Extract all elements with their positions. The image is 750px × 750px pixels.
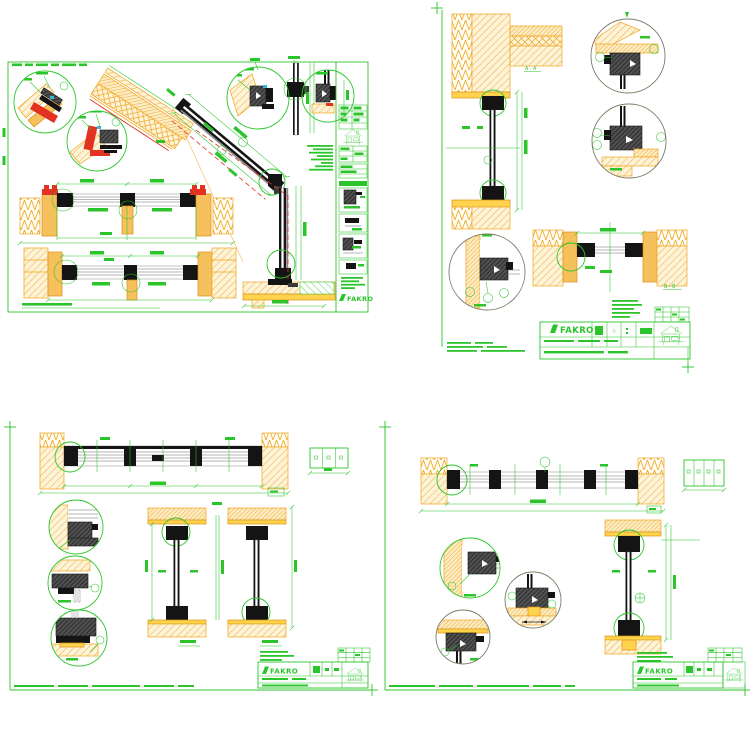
sheet2-title-block: FAKRO <box>540 300 694 373</box>
sheet-bottom-left-three-pane-window: FAKRO <box>4 421 378 696</box>
sheet4-window-elevation <box>682 460 726 492</box>
sheet1-table-2 <box>339 146 367 162</box>
sheet2-fakro-wordmark: FAKRO <box>560 326 594 336</box>
drawing-canvas: FAKRO A - A <box>0 0 750 750</box>
sheet3-plan-section <box>38 433 290 496</box>
sheet3-window-elevation <box>308 448 350 475</box>
fakro-parallelogram-icon <box>637 667 644 675</box>
sheet1-detail-circle-1 <box>14 71 76 133</box>
sheet4-detail-circle-1 <box>440 538 510 598</box>
sheet4-plan-section <box>419 457 665 513</box>
sheet2-vertical-window-section <box>446 90 528 229</box>
sheet2-title-row2-text <box>544 340 618 342</box>
sheet2-title-row3-text <box>544 351 628 353</box>
sheet4-fakro-logo: FAKRO <box>637 667 673 676</box>
sheet1-detail-circle-2 <box>67 110 127 171</box>
sheet3-detail-circle-2 <box>48 556 102 610</box>
sheet2-corner-mark <box>431 2 443 14</box>
sheet3-title-block: FAKRO <box>258 648 370 688</box>
sheet4-scale-cell-icon <box>686 666 693 673</box>
sheet1-fakro-wordmark: FAKRO <box>347 295 373 303</box>
cad-drawing-set: FAKRO A - A <box>0 0 750 750</box>
sheet1-fakro-logo: FAKRO <box>339 294 373 303</box>
sheet4-corner-mark-right <box>739 684 750 696</box>
sheet3-detail-circle-1 <box>46 500 103 554</box>
sheet1-thumbnail-3 <box>339 234 367 258</box>
sheet2-detail-circle-top <box>591 12 665 93</box>
sheet3-bottom-notes <box>14 685 194 687</box>
sheet1-legend-text-block <box>307 145 333 171</box>
sheet2-cell-mark-1 <box>611 328 616 333</box>
sheet2-mini-table <box>655 307 689 322</box>
sheet2-section-a-label: A - A <box>525 66 537 72</box>
sheet1-detail-circle-3 <box>227 58 289 129</box>
sheet4-bottom-notes <box>389 685 575 687</box>
sheet1-bottom-underline <box>22 303 72 306</box>
fakro-parallelogram-icon <box>339 294 346 301</box>
sheet4-house-icon <box>724 668 743 682</box>
sheet3-vertical-section-b <box>228 505 297 646</box>
sheet1-horizontal-section-row2 <box>24 248 236 302</box>
sheet4-vertical-section <box>605 520 700 654</box>
sheet2-house-icon <box>659 326 684 345</box>
sheet1-table-1 <box>339 105 367 129</box>
sheet2-corner-mark-bottom <box>682 361 694 373</box>
fakro-parallelogram-icon <box>550 325 558 334</box>
sheet2-detail-circle-middle <box>592 104 666 178</box>
sheet3-mini-table <box>338 648 370 662</box>
sheet1-notes-block <box>341 277 365 289</box>
sheet1-green-bar <box>339 181 367 186</box>
sheet1-ridge-detail-group <box>227 56 354 135</box>
sheet1-thumbnail-2 <box>339 214 367 232</box>
sheet2-note-text-block <box>612 300 642 318</box>
sheet2-fakro-logo: FAKRO <box>550 325 594 337</box>
fakro-parallelogram-icon <box>262 667 269 675</box>
sheet1-table-3 <box>339 164 367 178</box>
sheet4-mini-table <box>708 648 742 662</box>
sheet3-house-icon <box>345 668 364 682</box>
sheet3-center-dimension <box>212 502 224 620</box>
sheet2-wall-section: A - A <box>452 14 562 98</box>
sheet-top-left-roof-window-details: FAKRO <box>3 56 374 312</box>
sheet-top-right-vertical-window-details: A - A <box>431 2 694 373</box>
sheet2-cell-mark-2 <box>640 328 652 334</box>
sheet4-detail-circle-2 <box>505 572 561 628</box>
sheet2-bottom-notes <box>447 342 525 352</box>
sheet2-detail-circle-bottom-left <box>449 234 525 310</box>
sheet1-horizontal-section-row1 <box>18 179 235 245</box>
sheet-bottom-right-four-pane-window: FAKRO <box>379 421 750 696</box>
sheet4-detail-circle-3 <box>436 610 490 665</box>
sheet2-section-arrow-icon <box>625 12 629 18</box>
sheet2-section-b-label: B - B <box>664 284 675 290</box>
sheet3-vertical-section-a <box>145 508 206 646</box>
sheet4-house-box <box>723 662 745 688</box>
sheet1-edge-mark-2 <box>3 156 6 165</box>
sheet1-edge-mark-1 <box>3 128 6 137</box>
sheet2-scale-cell-icon <box>595 326 603 335</box>
sheet1-house-icon <box>343 130 363 145</box>
sheet1-top-micro-text <box>12 64 87 67</box>
sheet3-note-text-block <box>260 651 294 661</box>
sheet3-fakro-logo: FAKRO <box>262 667 298 676</box>
sheet1-thumbnail-1 <box>339 188 367 212</box>
sheet1-thumbnail-4 <box>339 260 367 274</box>
sheet4-fakro-wordmark: FAKRO <box>645 668 673 676</box>
sheet4-note-text-block <box>637 652 673 662</box>
sheet3-scale-cell-icon <box>313 666 320 673</box>
sheet3-detail-circle-3 <box>51 608 107 666</box>
sheet3-fakro-wordmark: FAKRO <box>270 668 298 676</box>
sheet2-horizontal-section: B - B <box>533 222 687 292</box>
